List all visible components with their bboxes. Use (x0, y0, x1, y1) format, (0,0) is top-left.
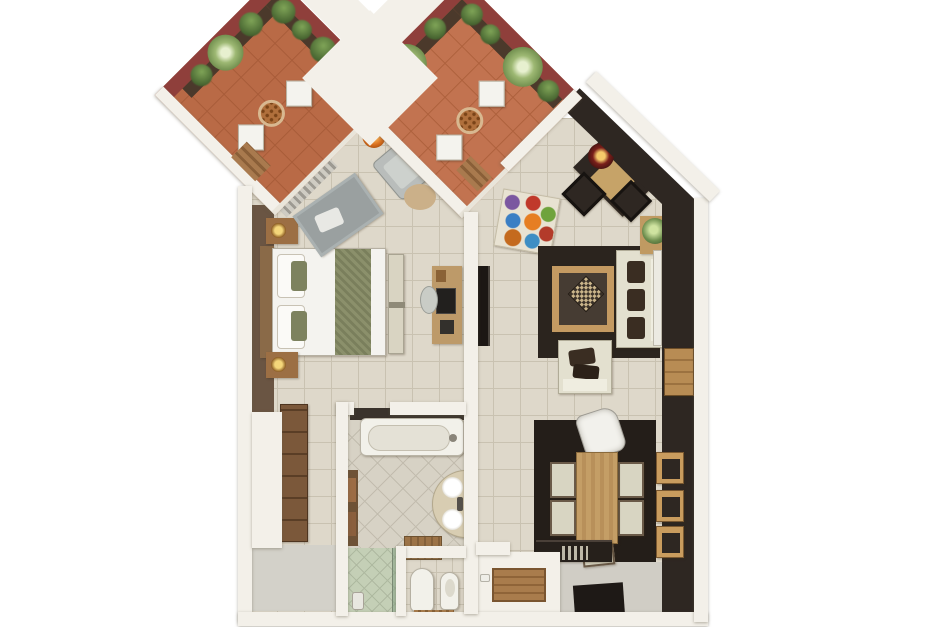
shower-head (352, 592, 364, 610)
outer-wall-bottom (238, 612, 708, 626)
bathroom-left-wall (336, 402, 348, 616)
bidet-basin (445, 579, 455, 597)
wall-cabinet (664, 348, 694, 396)
sofa-cushion (627, 261, 645, 283)
wc-left-wall (396, 546, 406, 616)
counter-item (480, 574, 490, 582)
bed-foot-bench (388, 254, 404, 354)
bathtub-faucet (449, 434, 457, 442)
table-lamp (271, 223, 286, 238)
bed-runner (335, 249, 371, 355)
wall-stub-living (476, 542, 510, 555)
armchair-cushion (572, 364, 599, 381)
armchair-back (563, 379, 607, 391)
dining-table (576, 452, 618, 544)
bathtub (360, 418, 464, 456)
wall-shelf (656, 452, 684, 484)
bed (272, 248, 386, 356)
wall-shelf (656, 490, 684, 522)
wall-shelf (656, 526, 684, 558)
dining-chair (550, 462, 576, 498)
toilet (410, 568, 434, 612)
balcony-chair (436, 134, 462, 160)
bed-accent-pillow (291, 311, 307, 341)
bathroom-top-wall (390, 402, 466, 415)
dining-chair (618, 500, 644, 536)
nightstand (266, 218, 298, 244)
dining-chair (618, 462, 644, 498)
kitchen-counter (466, 552, 560, 614)
floor-plan (0, 0, 940, 627)
bench-gap (389, 302, 405, 308)
coffee-table (552, 266, 614, 332)
bidet (440, 572, 459, 610)
bathtub-basin (368, 425, 450, 451)
faucet (457, 497, 463, 511)
desk-item (440, 320, 454, 334)
sofa-cushion (627, 289, 645, 311)
wall-tv (477, 266, 490, 346)
laptop (436, 288, 456, 314)
desk-item (436, 270, 446, 282)
living-armchair (558, 340, 612, 394)
wooden-tray (492, 568, 546, 602)
nightstand (266, 352, 298, 378)
hallway-entry-floor (252, 545, 336, 611)
rug-pillow (314, 207, 345, 234)
sofa-cushion (627, 317, 645, 339)
balcony-chair (479, 81, 505, 107)
bed-accent-pillow (291, 261, 307, 291)
shelf-opening (662, 459, 680, 479)
sink (442, 477, 463, 498)
sideboard-stripe (562, 546, 588, 560)
table-lamp (271, 357, 286, 372)
radiator-panel (653, 250, 662, 346)
dining-chair (550, 500, 576, 536)
outer-wall-left (238, 186, 252, 622)
wc-top-wall (398, 546, 466, 558)
desk-chair (420, 286, 438, 314)
hallway-closet-block (252, 412, 282, 548)
wardrobe (280, 404, 308, 542)
table-cushion (568, 276, 605, 313)
outer-wall-right (694, 198, 708, 622)
shelf-opening (662, 533, 680, 553)
shelf-opening (662, 497, 680, 517)
sink (442, 509, 463, 530)
